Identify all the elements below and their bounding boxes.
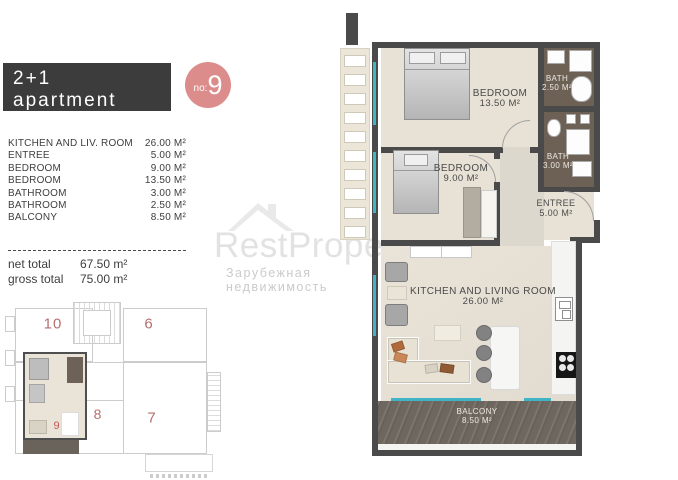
room-area: 5.00 M² [151,150,186,162]
watermark-tagline: Зарубежная недвижимость [226,266,328,294]
single-bed-icon [393,150,439,214]
side-balcony-hatch [207,372,221,432]
wall-between-baths [544,106,600,112]
floor-subtitle: first floor [13,114,171,128]
room-label: BEDROOM [8,163,61,175]
wall-bedrooms [530,147,544,153]
stairwell-core [83,310,111,336]
stair-step [344,188,366,200]
tv-unit-icon [410,246,472,258]
room-label-bath-small: BATH 2.50 M² [542,75,572,93]
edge-detail [5,316,15,332]
list-item: BEDROOM 9.00 M² [8,163,186,175]
wall-bottom [372,450,582,456]
washer-icon [580,114,590,124]
stair-step [344,93,366,105]
cushion [439,363,454,374]
unit-number-9: 9 [53,420,60,432]
terrace-dots [150,474,210,478]
room-label: BATHROOM [8,188,67,200]
balcony-window [524,398,551,401]
room-area: 9.00 M² [151,163,186,175]
shaft-wall-stub [346,13,358,45]
floor-plan: BEDROOM 13.50 M² BATH 2.50 M² BEDROOM 9.… [330,42,604,458]
mini-sofa [29,420,47,434]
divider [8,250,186,251]
terrace-outline [145,454,213,472]
unit-number-10: 10 [44,316,63,333]
kitchen-island [490,326,520,390]
stair-step [344,74,366,86]
stair-step [344,207,366,219]
list-item: BEDROOM 13.50 M² [8,175,186,187]
unit-number-8: 8 [94,406,103,422]
net-total-label: net total [8,257,80,272]
totals: net total 67.50 m² gross total 75.00 m² [8,257,186,286]
unit-number-6: 6 [144,316,153,333]
room-area: 8.50 M² [151,212,186,224]
washer-icon [566,114,576,124]
wall-right-upper [594,220,600,237]
gross-total-label: gross total [8,272,80,287]
double-bed-icon [404,48,470,120]
edge-detail [5,350,15,366]
list-item: ENTREE 5.00 M² [8,150,186,162]
unit-number-7: 7 [147,410,156,427]
side-table-icon [387,286,407,300]
stool-icon [476,367,492,383]
wardrobe-icon [463,187,481,238]
gross-total-value: 75.00 m² [80,272,127,287]
stool-icon [476,345,492,361]
wall-right-lower [576,237,582,456]
net-total-row: net total 67.50 m² [8,257,186,272]
toilet-icon [547,119,561,137]
stair-step [344,112,366,124]
badge-prefix: no: [194,83,208,94]
room-label: BALCONY [8,212,57,224]
wardrobe-icon [481,190,497,238]
room-area: 2.50 M² [151,200,186,212]
stair-step [344,55,366,67]
room-label-balcony: BALCONY 8.50 M² [456,408,497,426]
badge-number: 9 [207,72,222,99]
stair-step [344,150,366,162]
room-area: 3.00 M² [151,188,186,200]
mini-island [61,412,79,436]
mini-bath [67,357,83,383]
cushion [424,363,438,374]
window [373,275,376,336]
room-label: BEDROOM [8,175,61,187]
sink-icon [547,50,565,64]
wall-right-upper [594,42,600,192]
wall-bedroom-small-right [494,153,500,159]
apartment-title: 2+1 apartment [13,68,171,112]
mini-balcony [23,440,79,454]
gross-total-row: gross total 75.00 m² [8,272,186,287]
room-label-bedroom-large: BEDROOM 13.50 M² [473,88,527,110]
armchair-icon [385,262,408,282]
room-label-bedroom-small: BEDROOM 9.00 M² [434,163,488,185]
armchair-icon [385,304,408,326]
stair-step [344,169,366,181]
cooktop-icon [556,352,576,378]
exterior-stairs [340,48,370,240]
shower-icon [566,129,590,155]
window [373,152,376,213]
unit-divider [123,362,124,454]
apartment-header: 2+1 apartment first floor [3,63,171,111]
entry-door-opening [594,192,600,220]
stool-icon [476,325,492,341]
list-item: KITCHEN AND LIV. ROOM 26.00 M² [8,138,186,150]
list-item: BATHROOM 3.00 M² [8,188,186,200]
bathtub-icon [571,76,592,102]
stair-step [344,131,366,143]
listing-floorplan-image: { "header": { "title": "2+1 apartment", … [0,0,678,480]
room-area-list: KITCHEN AND LIV. ROOM 26.00 M² ENTREE 5.… [8,138,186,225]
list-item: BATHROOM 2.50 M² [8,200,186,212]
room-label-bath-large: BATH 3.00 M² [543,153,573,171]
list-item: BALCONY 8.50 M² [8,212,186,224]
balcony-window [391,398,481,401]
stair-step [344,226,366,238]
unit-outline [123,308,207,362]
mini-bed [29,384,45,403]
room-label-entree: ENTREE 5.00 M² [537,198,576,218]
coffee-table-icon [434,325,461,341]
fridge-icon [555,297,573,321]
edge-detail [5,386,15,402]
unit-number-badge: no: 9 [185,62,231,108]
room-area: 13.50 M² [145,175,186,187]
window [373,62,376,125]
shower-icon [569,50,592,72]
building-overview-plan: 10 6 8 7 9 [5,302,229,480]
room-label: BATHROOM [8,200,67,212]
room-label-living: KITCHEN AND LIVING ROOM 26.00 M² [410,286,556,308]
room-area: 26.00 M² [145,138,186,150]
mini-bed [29,358,49,380]
room-label: ENTREE [8,150,50,162]
sink-icon [572,161,592,177]
room-label: KITCHEN AND LIV. ROOM [8,138,133,150]
net-total-value: 67.50 m² [80,257,127,272]
